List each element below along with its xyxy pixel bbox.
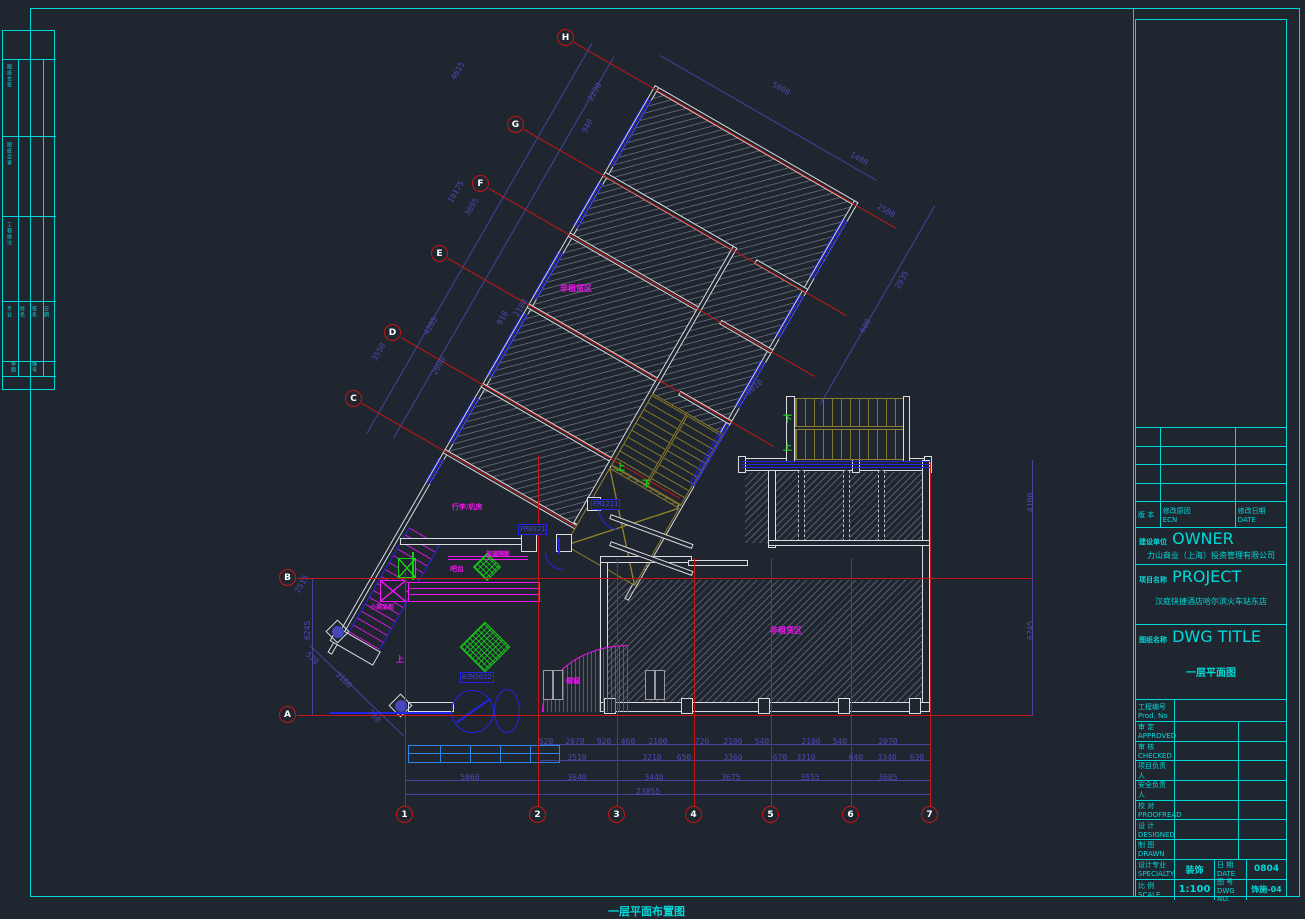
signature-field (1175, 840, 1239, 859)
door-tag: BZM3022 (460, 672, 494, 683)
signature-field (1239, 781, 1286, 800)
specialty-value: 装饰 (1175, 860, 1215, 879)
prod-no-value (1175, 700, 1286, 721)
signoff-cell-text: 审图 (10, 361, 17, 375)
rev-col-reason: 修改原因ECN (1161, 502, 1236, 527)
grid-bubble: 6 (842, 806, 859, 823)
signature-label: 审 定APPROVED (1136, 722, 1175, 741)
grid-bubble: 4 (685, 806, 702, 823)
entry-step-tick (440, 745, 441, 763)
room-label: 橱窗 (566, 676, 580, 686)
grid-bubble: 7 (921, 806, 938, 823)
specialty-row: 设计专业SPECIALTY 装饰 日 期DATE 0804 (1136, 860, 1286, 880)
signature-label: 校 对PROOFREAD (1136, 801, 1175, 820)
dimension-text: 3210 (634, 753, 670, 762)
signature-row: 安全负责人 (1136, 781, 1286, 801)
signature-field (1239, 761, 1286, 780)
revision-row (1136, 428, 1286, 447)
grid-bubble: 5 (762, 806, 779, 823)
signature-row: 制 图DRAWN (1136, 840, 1286, 860)
prod-no-label: 工程编号Prod. No (1136, 700, 1175, 721)
grid-bubble: H (557, 29, 574, 46)
signature-field (1239, 722, 1286, 741)
dwg-title: 一层平面图 (1139, 664, 1283, 679)
dwgno-label: 图 号DWG NO. (1215, 880, 1247, 900)
dimension-text: 3675 (713, 773, 749, 782)
signoff-cell-text: 图纸目录 (6, 142, 13, 208)
window (742, 461, 930, 468)
entry-step-tick (530, 745, 531, 763)
room-label: 非租赁区 (770, 625, 802, 636)
dimension-text: 650 (666, 753, 702, 762)
signature-label: 审 核CHECKED (1136, 742, 1175, 761)
room-label: 非租赁区 (560, 283, 592, 294)
revision-rows (1136, 428, 1286, 502)
grid-bubble: 2 (529, 806, 546, 823)
stair-direction-label: 上 (783, 440, 792, 453)
signature-row: 设 计DESIGNED (1136, 820, 1286, 840)
entry-step-tick (470, 745, 471, 763)
grid-line (297, 715, 1032, 716)
room-label: 吧台 (450, 564, 464, 574)
scale-value: 1:100 (1175, 880, 1215, 900)
signoff-cell-text: 签名 (31, 306, 38, 356)
owner-block: 建设单位 OWNER 力山商业（上海）投资管理有限公司 (1136, 528, 1286, 565)
scale-row: 比 例SCALE 1:100 图 号DWG NO. 饰施-04 (1136, 880, 1286, 900)
entry-step-tick (500, 745, 501, 763)
prod-no-row: 工程编号Prod. No (1136, 700, 1286, 722)
grid-line (694, 558, 695, 806)
border (1299, 8, 1300, 897)
stair-direction-label: 下 (783, 412, 792, 425)
specialty-label: 设计专业SPECIALTY (1136, 860, 1175, 879)
door-tag: FM1221 (591, 499, 620, 510)
signature-field (1239, 820, 1286, 839)
dimension-text: 540 (822, 737, 858, 746)
grid-line (617, 558, 618, 806)
stair-direction-label: 上 (616, 460, 625, 473)
grid-line (851, 558, 852, 806)
owner-name: 力山商业（上海）投资管理有限公司 (1139, 550, 1283, 561)
dimension-text: 630 (899, 753, 935, 762)
revision-row (1136, 465, 1286, 484)
grid-bubble: F (472, 175, 489, 192)
revision-row (1136, 484, 1286, 503)
threshold-line (330, 712, 452, 714)
sheet-caption: 一层平面布置图 (608, 903, 685, 919)
border (30, 896, 1300, 897)
signature-field (1175, 722, 1239, 741)
project-name: 汉庭快捷酒店哈尔滨火车站东店 (1139, 596, 1283, 607)
revision-row (1136, 447, 1286, 466)
grid-bubble: E (431, 245, 448, 262)
grid-bubble: B (279, 569, 296, 586)
signature-field (1239, 801, 1286, 820)
signature-label: 制 图DRAWN (1136, 840, 1175, 859)
dwg-title-block: 图纸名称 DWG TITLE 一层平面图 (1136, 625, 1286, 700)
rev-col-date: 修改日期DATE (1236, 502, 1286, 527)
grid-bubble: 1 (396, 806, 413, 823)
room-label: 小商品柜 (370, 602, 394, 611)
signature-label: 设 计DESIGNED (1136, 820, 1175, 839)
grid-bubble: 3 (608, 806, 625, 823)
dimension-text: 5860 (452, 773, 488, 782)
signoff-cell-text: 工程做法 (6, 222, 13, 292)
grid-bubble: G (507, 116, 524, 133)
dimension-text: 3360 (715, 753, 751, 762)
signoff-cell-text: 专业 (6, 306, 13, 356)
grid-line (538, 455, 539, 806)
signature-rows: 审 定APPROVED审 核CHECKED项目负责人安全负责人校 对PROOFR… (1136, 722, 1286, 860)
signature-field (1239, 840, 1286, 859)
date-value: 0804 (1247, 860, 1286, 879)
dwgno-value: 饰施-04 (1247, 880, 1286, 900)
dimension-text: 3310 (788, 753, 824, 762)
room-label: 上 (396, 654, 404, 665)
grid-line (297, 578, 1032, 579)
signature-label: 项目负责人 (1136, 761, 1175, 780)
signature-field (1175, 761, 1239, 780)
dimension-text: 3685 (870, 773, 906, 782)
dimension-text: 6245 (1026, 621, 1035, 640)
grid-bubble: D (384, 324, 401, 341)
dimension-text: 6245 (303, 621, 312, 640)
window-frame-mullion (654, 671, 656, 699)
signature-row: 项目负责人 (1136, 761, 1286, 781)
signature-field (1175, 801, 1239, 820)
rev-col-version: 版 本 (1136, 502, 1161, 527)
window-frame-mullion (552, 671, 554, 699)
stair-direction-label: 下 (642, 477, 651, 490)
rev-header: 版 本 修改原因ECN 修改日期DATE (1136, 502, 1286, 528)
dimension-text: 2100 (640, 737, 676, 746)
grid-bubble: C (345, 390, 362, 407)
dimension-text: 23855 (630, 787, 666, 796)
cad-canvas: { "sheet": { "caption": "一层平面布置图" }, "co… (0, 0, 1305, 912)
dimension-text: 3440 (636, 773, 672, 782)
room-label: 行李/机房 (452, 502, 483, 512)
signoff-cell-text: 编号 (31, 361, 38, 375)
signoff-cell-text: 图纸会签 (6, 64, 13, 130)
grid-line (771, 558, 772, 806)
signature-field (1175, 820, 1239, 839)
signoff-cell-text: 姓名 (19, 306, 26, 356)
column (332, 626, 344, 638)
scale-label: 比 例SCALE (1136, 880, 1175, 900)
signature-label: 安全负责人 (1136, 781, 1175, 800)
dimension-text: 3555 (792, 773, 828, 782)
dimension-text: 2070 (870, 737, 906, 746)
dimension-text: 3640 (559, 773, 595, 782)
title-divider (1133, 8, 1134, 897)
signature-field (1175, 742, 1239, 761)
project-block: 项目名称 PROJECT 汉庭快捷酒店哈尔滨火车站东店 (1136, 565, 1286, 625)
signature-field (1239, 742, 1286, 761)
grid-line (405, 572, 406, 806)
door-swing-arc (494, 689, 520, 733)
grid-bubble: A (279, 706, 296, 723)
room-label: 玻璃隔断 (486, 549, 510, 558)
signature-row: 校 对PROOFREAD (1136, 801, 1286, 821)
dimension-text: 3510 (559, 753, 595, 762)
rev-table-space (1136, 20, 1286, 428)
dimension-text: 540 (744, 737, 780, 746)
title-block: 版 本 修改原因ECN 修改日期DATE 建设单位 OWNER 力山商业（上海）… (1135, 19, 1287, 897)
door-tag: FM0821 (518, 524, 547, 535)
dimension-text: 4100 (1026, 493, 1035, 512)
signoff-cell-text: 日期 (43, 306, 50, 356)
signature-row: 审 核CHECKED (1136, 742, 1286, 762)
signature-row: 审 定APPROVED (1136, 722, 1286, 742)
signature-field (1175, 781, 1239, 800)
door-leaf (558, 538, 560, 554)
border (30, 8, 1300, 9)
